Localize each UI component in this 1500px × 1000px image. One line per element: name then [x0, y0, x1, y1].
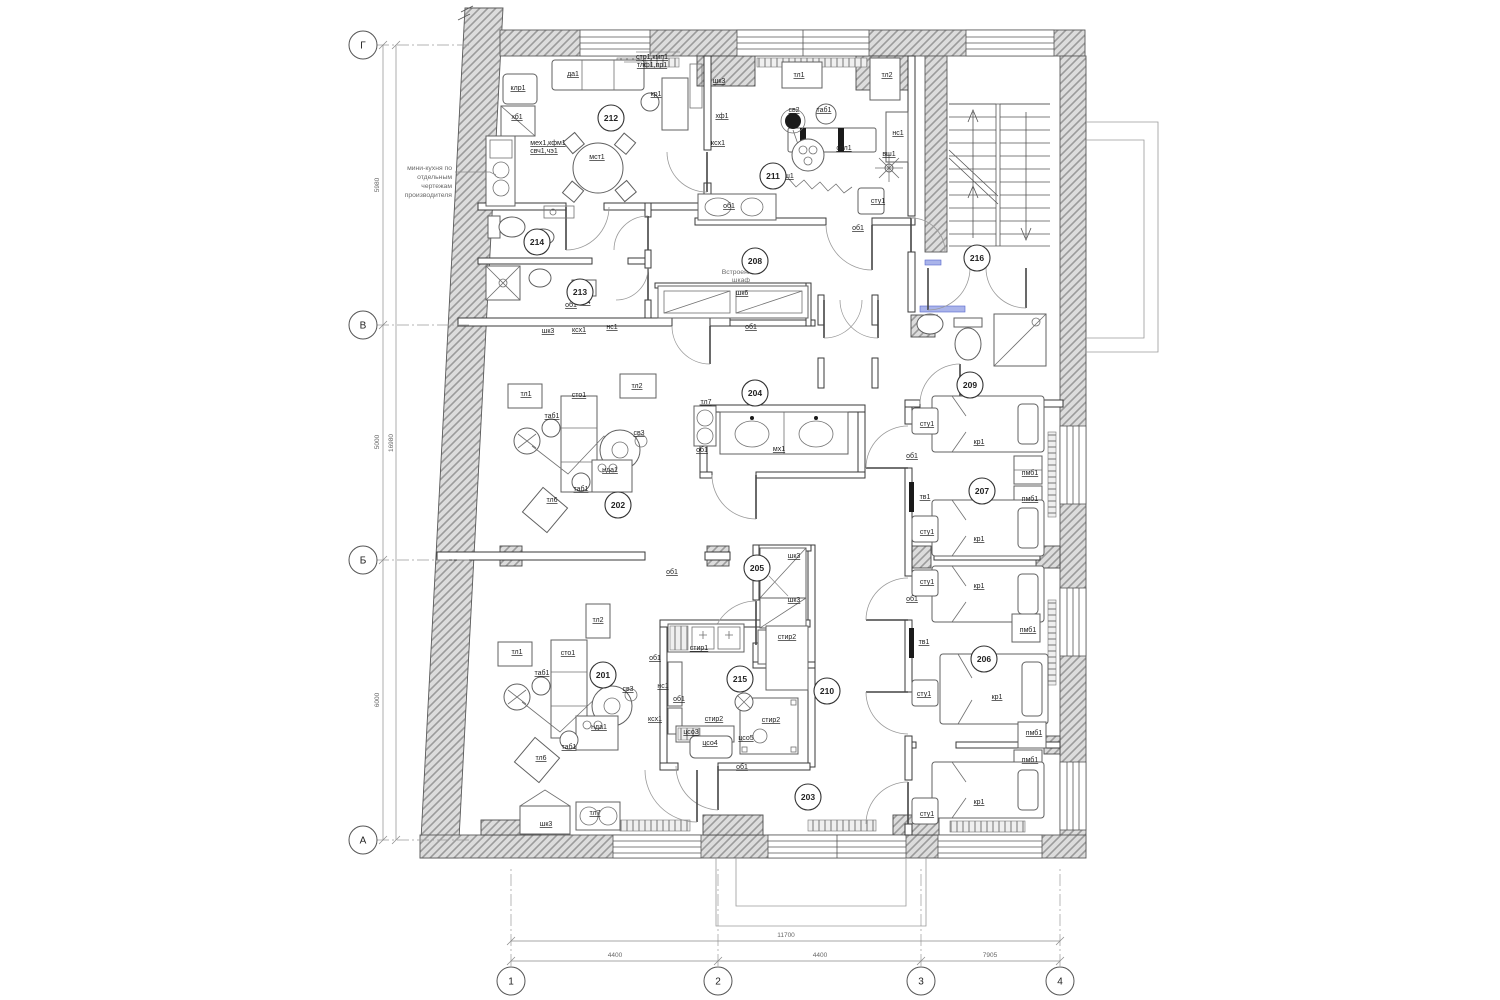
furniture-label-тл7: тл7 [700, 399, 711, 406]
furniture-label-сту1: сту1 [920, 811, 934, 818]
furniture-label-тв1: тв1 [919, 639, 930, 646]
furniture-label-об1: об1 [673, 695, 685, 703]
annotation-note: чертежам [421, 183, 452, 190]
light-symbol [735, 693, 753, 711]
furniture-label-пмб1: пмб1 [1022, 495, 1039, 503]
furniture-label-тл1: тл1 [520, 391, 531, 398]
grid-label-3: 3 [918, 977, 924, 988]
furniture-label-об1: об1 [666, 568, 678, 576]
furniture-label-шк3: шк3 [713, 78, 726, 85]
furniture-label-цсо4: цсо4 [702, 740, 717, 747]
lintel-marks [920, 260, 965, 312]
furniture-label-кр1: кр1 [974, 583, 985, 590]
door [667, 152, 707, 192]
furniture-label-пмб1: пмб1 [1022, 756, 1039, 764]
room-number-216: 216 [970, 253, 984, 263]
furniture-label-об1: об1 [696, 446, 708, 454]
furniture-label-таб1: таб1 [574, 485, 589, 493]
dim-value-7905: 7905 [983, 952, 998, 959]
furniture-label-нс1: нс1 [657, 683, 668, 690]
door [614, 216, 648, 250]
furniture-label-шк3: шк3 [542, 328, 555, 335]
furniture-label-тл6: тл6 [535, 755, 546, 762]
furniture-label-об1: об1 [745, 323, 757, 331]
room-number-215: 215 [733, 674, 747, 684]
window [966, 30, 1054, 56]
room-number-201: 201 [596, 670, 610, 680]
window [1060, 762, 1086, 830]
floor-plan-drawing: да1клр1хб1стр1,кмп1тлф1,пр1кр1мех1,кфм1с… [0, 0, 1500, 1000]
room-number-205: 205 [750, 563, 764, 573]
door [566, 207, 609, 250]
furniture-label-тл2: тл2 [881, 72, 892, 79]
furniture-label-кр1: кр1 [974, 439, 985, 446]
furniture-label-нс1: нс1 [606, 324, 617, 331]
furniture-room-201 [498, 604, 637, 834]
furniture-label-тл1: тл1 [793, 72, 804, 79]
furniture-label-пмб1: пмб1 [1022, 469, 1039, 477]
annotation-note: производителя [405, 192, 453, 199]
furniture-label-таб1: таб1 [562, 743, 577, 751]
staircase [949, 104, 1050, 246]
furniture-label-кр1: кр1 [992, 694, 1003, 701]
room-number-206: 206 [977, 654, 991, 664]
door [824, 300, 862, 338]
furniture-label-шк3: шк3 [788, 553, 801, 560]
door [986, 268, 1026, 308]
furniture-label-тл2: тл2 [631, 383, 642, 390]
door [866, 692, 908, 734]
curtain-zigzag [788, 178, 852, 193]
grid-label-4: 4 [1057, 977, 1063, 988]
furniture-label-клр1: клр1 [510, 85, 525, 92]
furniture-label-сту1: сту1 [920, 579, 934, 586]
room-number-203: 203 [801, 792, 815, 802]
furniture-label-об1: об1 [736, 763, 748, 771]
room-number-211: 211 [766, 171, 780, 181]
furniture-label-шк3: шк3 [540, 821, 553, 828]
furniture-label-нда1: нда1 [602, 467, 618, 474]
grid-label-В: В [360, 321, 367, 332]
furniture-label-об1: об1 [723, 202, 735, 210]
door [712, 475, 756, 519]
room-number-210: 210 [820, 686, 834, 696]
furniture-label-мст1: мст1 [589, 154, 605, 161]
furniture-label-тл6: тл6 [546, 497, 557, 504]
annotation-note: мини-кухня по [407, 165, 452, 172]
furniture-label-пмб1: пмб1 [1020, 626, 1037, 634]
furniture-label-стр1,кмп1: стр1,кмп1 [636, 54, 668, 61]
grid-label-Г: Г [360, 41, 366, 52]
furniture-label-сту1: сту1 [920, 421, 934, 428]
window [1060, 588, 1086, 656]
furniture-room-204 [694, 406, 848, 454]
furniture-label-кр1: кр1 [651, 91, 662, 98]
bed [932, 396, 1044, 452]
furniture-label-таб1: таб1 [535, 669, 550, 677]
furniture-label-пмб1: пмб1 [1026, 729, 1043, 737]
furniture-label-сто1: сто1 [561, 650, 576, 657]
furniture-label-мх1: мх1 [773, 446, 785, 453]
furniture-label-таб1: таб1 [817, 106, 832, 114]
furniture-label-вш1: вш1 [882, 151, 895, 158]
furniture-label-об1: об1 [649, 654, 661, 662]
bed [932, 500, 1044, 556]
door [866, 426, 908, 468]
furniture-corridor-208 [658, 286, 808, 318]
furniture-label-сто1: сто1 [572, 392, 587, 399]
furniture-label-сту1: сту1 [920, 529, 934, 536]
room-number-213: 213 [573, 287, 587, 297]
room-number-207: 207 [975, 486, 989, 496]
furniture-label-ксх1: ксх1 [572, 327, 586, 334]
furniture-room-212 [486, 60, 702, 206]
grid-label-1: 1 [508, 977, 514, 988]
furniture-label-сту1: сту1 [917, 691, 931, 698]
furniture-label-ксх1: ксх1 [711, 140, 725, 147]
room-number-214: 214 [530, 237, 544, 247]
door [645, 770, 697, 822]
room-number-212: 212 [604, 113, 618, 123]
furniture-label-сту1: сту1 [871, 198, 885, 205]
window [768, 835, 906, 858]
dim-value-4400: 4400 [813, 952, 828, 959]
furniture-label-об1: об1 [906, 452, 918, 460]
grid-label-Б: Б [360, 556, 367, 567]
door [616, 268, 648, 300]
door [928, 268, 970, 310]
window [1060, 426, 1086, 504]
dim-value-4400: 4400 [608, 952, 623, 959]
furniture-label-нс1: нс1 [892, 130, 903, 137]
grid-label-А: А [360, 836, 367, 847]
furniture-label-тл7: тл7 [589, 810, 600, 817]
furniture-label-кр1: кр1 [974, 799, 985, 806]
furniture-label-стир2: стир2 [705, 716, 724, 723]
furniture-label-стир2: стир2 [762, 717, 781, 724]
door [672, 326, 710, 364]
furniture-label-тв1: тв1 [920, 494, 931, 501]
annotation-note: шкаф [732, 277, 750, 284]
room-number-204: 204 [748, 388, 762, 398]
furniture-label-стир2: стир2 [778, 634, 797, 641]
furniture-label-ксх1: ксх1 [648, 716, 662, 723]
furniture-label-мех1,кфм1: мех1,кфм1 [530, 140, 566, 147]
dim-value-5980: 5980 [374, 177, 381, 192]
window [613, 835, 701, 858]
room-number-208: 208 [748, 256, 762, 266]
dim-value-5000: 5000 [374, 434, 381, 449]
furniture-room-209 [917, 314, 1046, 366]
furniture-label-хб1: хб1 [511, 113, 522, 121]
furniture-label-кр1: кр1 [974, 536, 985, 543]
furniture-label-тлф1,пр1: тлф1,пр1 [637, 62, 667, 69]
furniture-label-св3: св3 [622, 686, 633, 693]
dim-value-6000: 6000 [374, 692, 381, 707]
furniture-label-цсо3: цсо3 [683, 729, 698, 736]
window [938, 835, 1042, 858]
annotation-note: отдельным [417, 174, 452, 181]
room-number-209: 209 [963, 380, 977, 390]
furniture-label-тл2: тл2 [592, 617, 603, 624]
door [826, 225, 872, 270]
furniture-label-нда1: нда1 [591, 724, 607, 731]
door [866, 578, 908, 620]
furniture-label-св2: св2 [788, 107, 799, 114]
furniture-label-шк3: шк3 [788, 597, 801, 604]
room-number-202: 202 [611, 500, 625, 510]
furniture-label-св3: св3 [633, 430, 644, 437]
furniture-label-спл1: спл1 [836, 145, 851, 152]
dim-value-overall-v: 16980 [388, 434, 395, 452]
furniture-label-да1: да1 [567, 71, 579, 78]
furniture-label-стир1: стир1 [690, 645, 709, 652]
stair-up-arrow [968, 110, 978, 238]
coat-rack-vsh1 [875, 154, 903, 182]
furniture-label-свч1,чэ1: свч1,чэ1 [530, 148, 558, 155]
furniture-label-об1: об1 [906, 595, 918, 603]
furniture-label-шк6: шк6 [736, 290, 749, 297]
furniture-label-цсо5: цсо5 [738, 735, 753, 742]
dim-value-overall-h: 11700 [777, 932, 795, 939]
furniture-label-таб1: таб1 [545, 412, 560, 420]
table-mst1 [573, 143, 623, 193]
window [737, 30, 869, 56]
grid-label-2: 2 [715, 977, 721, 988]
furniture-label-тл1: тл1 [511, 649, 522, 656]
furniture-label-об1: об1 [852, 224, 864, 232]
furniture-label-хф1: хф1 [715, 113, 728, 120]
bed [932, 762, 1044, 818]
